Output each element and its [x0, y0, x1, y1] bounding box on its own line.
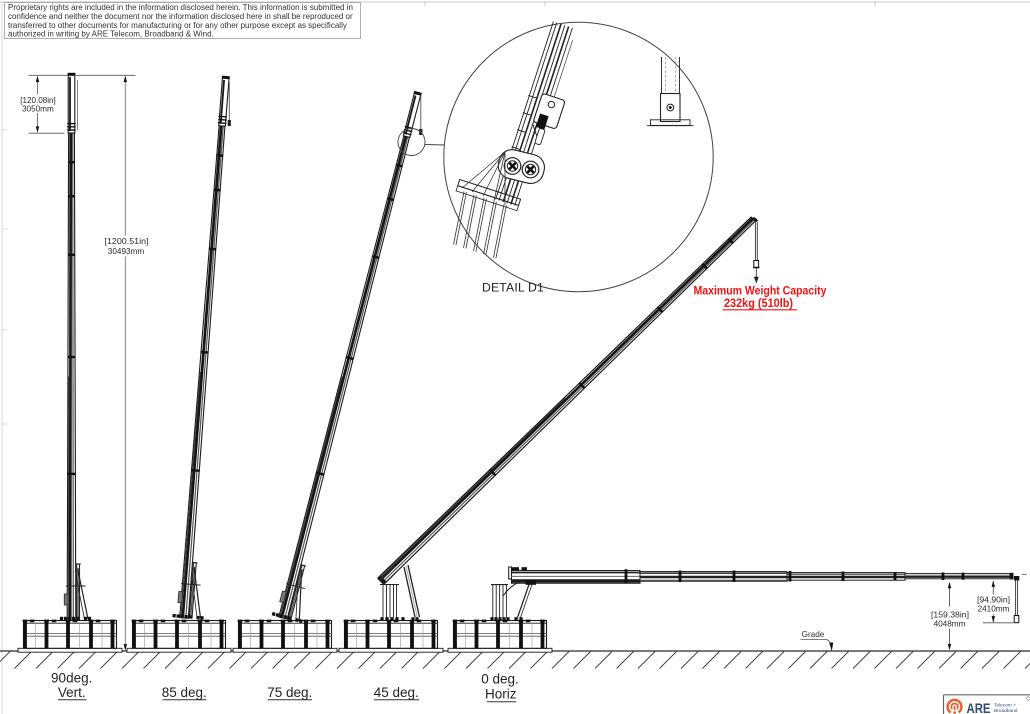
svg-text:30493mm: 30493mm	[108, 247, 145, 256]
svg-text:Proprietary rights are include: Proprietary rights are included in the i…	[8, 3, 353, 12]
svg-text:confidence and neither the doc: confidence and neither the document nor …	[8, 12, 353, 21]
svg-text:Broadband: Broadband	[994, 708, 1018, 714]
svg-text:[1200.51in]: [1200.51in]	[105, 237, 149, 246]
svg-text:Grade: Grade	[802, 630, 825, 639]
svg-text:[94.90in]: [94.90in]	[977, 595, 1010, 604]
svg-text:[159.38in]: [159.38in]	[931, 610, 969, 619]
svg-text:0 deg.: 0 deg.	[481, 672, 519, 687]
svg-text:Vert.: Vert.	[58, 685, 86, 700]
svg-text:3050mm: 3050mm	[22, 105, 54, 114]
svg-text:75 deg.: 75 deg.	[267, 685, 312, 700]
svg-text:authorized in writing by ARE T: authorized in writing by ARE Telecom, Br…	[8, 30, 214, 39]
svg-text:2410mm: 2410mm	[978, 605, 1010, 614]
svg-text:ARE: ARE	[967, 701, 991, 714]
svg-text:45 deg.: 45 deg.	[374, 685, 419, 700]
svg-text:C: C	[1026, 697, 1030, 703]
svg-text:4048mm: 4048mm	[934, 620, 966, 629]
svg-text:Telecom +: Telecom +	[994, 703, 1016, 709]
svg-text:DETAIL D1: DETAIL D1	[482, 281, 544, 295]
svg-text:90deg.: 90deg.	[51, 671, 92, 686]
svg-text:Horiz: Horiz	[485, 687, 517, 702]
svg-text:85 deg.: 85 deg.	[162, 685, 207, 700]
svg-text:transferred to other documents: transferred to other documents for manuf…	[8, 21, 347, 30]
svg-text:Maximum Weight Capacity: Maximum Weight Capacity	[694, 286, 828, 298]
svg-text:232kg (510lb): 232kg (510lb)	[724, 298, 793, 310]
